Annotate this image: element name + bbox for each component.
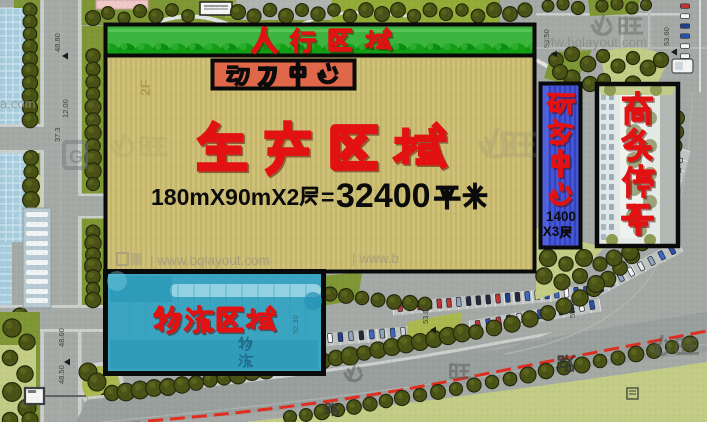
svg-text:1400: 1400 bbox=[546, 209, 576, 224]
svg-text:X3: X3 bbox=[543, 224, 560, 239]
svg-text:32400: 32400 bbox=[336, 177, 431, 215]
svg-text:| www.bqlayout.com: | www.bqlayout.com bbox=[150, 253, 270, 268]
svg-text:52.30: 52.30 bbox=[291, 315, 300, 334]
svg-text:| www.b: | www.b bbox=[352, 251, 399, 266]
svg-text:180mX90mX2: 180mX90mX2 bbox=[151, 184, 299, 210]
svg-text:2F: 2F bbox=[137, 79, 153, 96]
svg-text:=: = bbox=[321, 184, 334, 210]
